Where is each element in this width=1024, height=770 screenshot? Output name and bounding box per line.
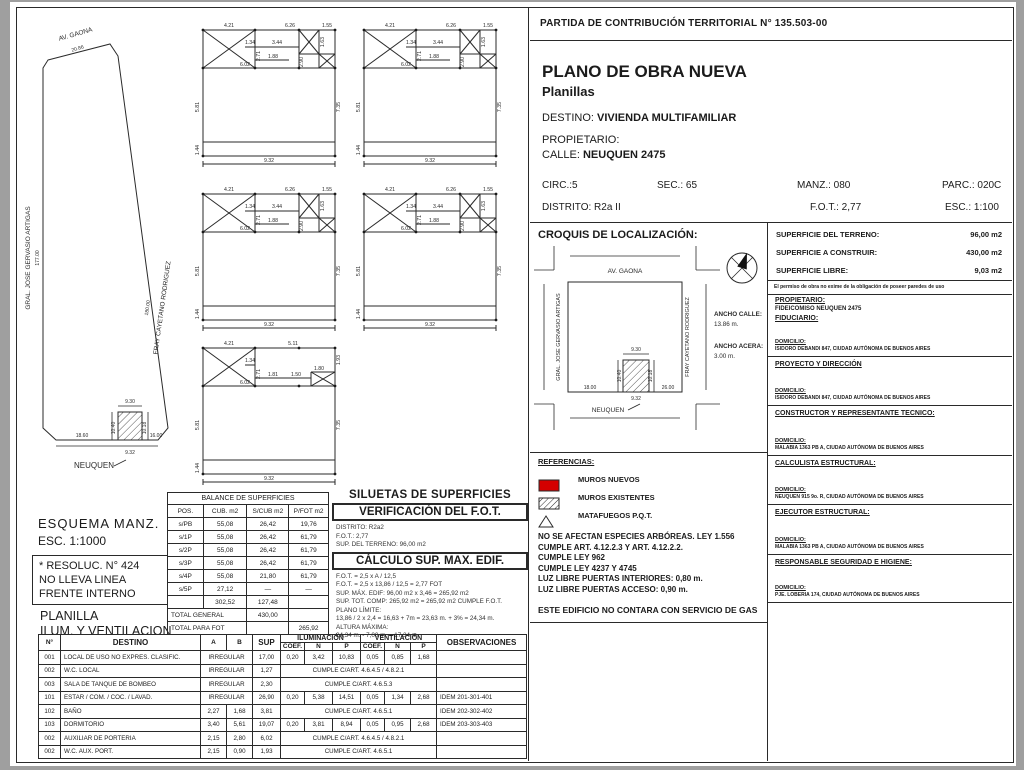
planilla-header: A bbox=[201, 635, 227, 651]
svg-text:6.02: 6.02 bbox=[401, 62, 411, 68]
balance-total-cell: 265,92 bbox=[289, 622, 329, 635]
cell-destino: LOCAL DE USO NO EXPRES. CLASIFIC. bbox=[61, 651, 201, 665]
balance-cell: 61,79 bbox=[289, 570, 329, 583]
balance-table: BALANCE DE SUPERFICIESPOS.CUB. m2S/CUB m… bbox=[167, 492, 329, 635]
cell-obs bbox=[437, 745, 527, 759]
planilla-ilum-vent-table: N°DESTINOABSUPILUMINACIÓNVENTILACIÓNOBSE… bbox=[38, 634, 527, 759]
domicilio-label: DOMICILIO: bbox=[775, 537, 806, 543]
svg-text:3.44: 3.44 bbox=[433, 204, 443, 210]
svg-text:6.26: 6.26 bbox=[285, 187, 295, 193]
balance-title: BALANCE DE SUPERFICIES bbox=[168, 493, 329, 505]
cell-ab: IRREGULAR bbox=[201, 678, 253, 692]
section-5: EJECUTOR ESTRUCTURAL:DOMICILIO:MALABIA 1… bbox=[768, 505, 1012, 555]
croquis-dim-left: 10.40 bbox=[617, 370, 623, 383]
svg-text:1.34: 1.34 bbox=[245, 40, 255, 46]
cell-obs bbox=[437, 664, 527, 678]
svg-text:7.35: 7.35 bbox=[336, 266, 342, 276]
balance-cell: s/5P bbox=[168, 583, 204, 596]
cell-ab: IRREGULAR bbox=[201, 651, 253, 665]
superficie-label: SUPERFICIE LIBRE: bbox=[776, 266, 848, 275]
floor-silhouette-5: 4.215.111.342.711.811.501.806.021.935.81… bbox=[193, 332, 345, 490]
balance-cell: s/2P bbox=[168, 544, 204, 557]
svg-text:6.02: 6.02 bbox=[240, 380, 250, 386]
balance-header: S/CUB m2 bbox=[247, 505, 289, 518]
cell-value: 3,81 bbox=[305, 718, 333, 732]
calculo-lines: F.O.T. = 2,5 x A / 12,5F.O.T. = 2,5 x 13… bbox=[336, 573, 528, 641]
calculo-line: ALTURA MÁXIMA: bbox=[336, 624, 528, 633]
svg-text:1.88: 1.88 bbox=[429, 218, 439, 224]
referencias-items: MUROS NUEVOSMUROS EXISTENTESMATAFUEGOS P… bbox=[538, 470, 760, 524]
balance-cell: 26,42 bbox=[247, 544, 289, 557]
svg-text:1.63: 1.63 bbox=[320, 201, 326, 211]
ancho-calle-label: ANCHO CALLE: bbox=[714, 311, 762, 318]
svg-text:3.44: 3.44 bbox=[433, 40, 443, 46]
svg-text:6.02: 6.02 bbox=[240, 62, 250, 68]
svg-text:7.35: 7.35 bbox=[336, 420, 342, 430]
balance-cell bbox=[168, 596, 204, 609]
legend-label: MUROS NUEVOS bbox=[578, 475, 640, 484]
cell-b: 2,80 bbox=[227, 732, 253, 746]
cell-sup: 1,93 bbox=[253, 745, 281, 759]
domicilio-value: NEUQUEN 915 9o. R, CIUDAD AUTÓNOMA DE BU… bbox=[775, 494, 924, 500]
planilla-header: N bbox=[305, 643, 333, 651]
cell-num: 003 bbox=[39, 678, 61, 692]
svg-text:3.44: 3.44 bbox=[272, 204, 282, 210]
section-1: PROPIETARIO:FIDEICOMISO NEUQUEN 2475FIDU… bbox=[768, 293, 1012, 357]
svg-text:7.35: 7.35 bbox=[336, 102, 342, 112]
cell-num: 002 bbox=[39, 745, 61, 759]
croquis-street-neuquen: NEUQUEN bbox=[592, 407, 625, 414]
cell-num: 002 bbox=[39, 664, 61, 678]
north-arrow-icon bbox=[727, 251, 757, 283]
cell-obs: IDEM 202-302-402 bbox=[437, 705, 527, 719]
svg-text:1.55: 1.55 bbox=[483, 187, 493, 193]
svg-text:9.32: 9.32 bbox=[264, 322, 274, 328]
manz-value: MANZ.: 080 bbox=[797, 180, 850, 191]
destino-label: DESTINO: bbox=[542, 112, 594, 124]
domicilio-value: PJE. LOBERIA 174, CIUDAD AUTÓNOMA DE BUE… bbox=[775, 592, 920, 598]
responsibles-sections: PROPIETARIO:FIDEICOMISO NEUQUEN 2475FIDU… bbox=[768, 293, 1012, 603]
svg-text:1.88: 1.88 bbox=[429, 54, 439, 60]
svg-text:6.26: 6.26 bbox=[446, 187, 456, 193]
partida-box: PARTIDA DE CONTRIBUCIÓN TERRITORIAL N° 1… bbox=[530, 7, 1012, 41]
superficies-summary: SUPERFICIE DEL TERRENO:96,00 m2SUPERFICI… bbox=[768, 222, 1012, 280]
superficie-value: 430,00 m2 bbox=[966, 248, 1002, 257]
balance-cell: 26,42 bbox=[247, 518, 289, 531]
svg-text:4.21: 4.21 bbox=[385, 23, 395, 29]
cell-sup: 3,81 bbox=[253, 705, 281, 719]
planilla-row: 102BAÑO2,271,683,81CUMPLE C/ART. 4.6.5.1… bbox=[39, 705, 527, 719]
svg-text:6.26: 6.26 bbox=[446, 23, 456, 29]
svg-text:2.90: 2.90 bbox=[460, 57, 466, 67]
propietario-line: PROPIETARIO: bbox=[542, 134, 619, 146]
cell-a: 2,27 bbox=[201, 705, 227, 719]
superficie-row: SUPERFICIE LIBRE:9,03 m2 bbox=[776, 266, 1002, 275]
svg-text:2.71: 2.71 bbox=[417, 51, 423, 61]
referencias-box: REFERENCIAS: MUROS NUEVOSMUROS EXISTENTE… bbox=[530, 452, 768, 623]
verificacion-lines: DISTRITO: R2a2F.O.T.: 2,77SUP. DEL TERRE… bbox=[336, 524, 528, 550]
cell-value: 0,05 bbox=[361, 718, 385, 732]
svg-text:1.55: 1.55 bbox=[322, 23, 332, 29]
svg-text:1.63: 1.63 bbox=[320, 37, 326, 47]
cell-value: 0,20 bbox=[281, 651, 305, 665]
balance-cell: s/4P bbox=[168, 570, 204, 583]
planilla-header: DESTINO bbox=[61, 635, 201, 651]
section-title: CALCULISTA ESTRUCTURAL: bbox=[775, 460, 876, 467]
svg-text:1.93: 1.93 bbox=[336, 355, 342, 365]
cell-destino: W.C. AUX. PORT. bbox=[61, 745, 201, 759]
partida-text: PARTIDA DE CONTRIBUCIÓN TERRITORIAL N° 1… bbox=[540, 18, 827, 29]
svg-text:7.35: 7.35 bbox=[497, 102, 503, 112]
balance-cell: 61,79 bbox=[289, 544, 329, 557]
cell-sup: 6,02 bbox=[253, 732, 281, 746]
cell-value: 8,94 bbox=[333, 718, 361, 732]
domicilio-label: DOMICILIO: bbox=[775, 339, 806, 345]
cell-value: 0,05 bbox=[361, 691, 385, 705]
croquis-dim-top: 9.30 bbox=[631, 347, 641, 353]
svg-text:1.80: 1.80 bbox=[314, 366, 324, 372]
referencias-title: REFERENCIAS: bbox=[538, 457, 760, 466]
superficie-value: 9,03 m2 bbox=[974, 266, 1002, 275]
balance-cell: 26,42 bbox=[247, 557, 289, 570]
svg-text:9.32: 9.32 bbox=[264, 158, 274, 164]
floor-silhouette-3: 4.216.261.551.343.442.711.886.021.632.90… bbox=[193, 178, 345, 336]
planilla-row: 001LOCAL DE USO NO EXPRES. CLASIFIC.IRRE… bbox=[39, 651, 527, 665]
cell-cumple: CUMPLE C/ART. 4.6.4.5 / 4.8.2.1 bbox=[281, 664, 437, 678]
sheet-subtitle: Planillas bbox=[542, 84, 595, 99]
svg-text:2.90: 2.90 bbox=[299, 221, 305, 231]
svg-text:1.44: 1.44 bbox=[356, 145, 362, 155]
domicilio-label: DOMICILIO: bbox=[775, 585, 806, 591]
cell-b: 5,61 bbox=[227, 718, 253, 732]
planilla-header: N bbox=[385, 643, 411, 651]
sheet-title: PLANO DE OBRA NUEVA bbox=[542, 62, 747, 82]
cell-destino: W.C. LOCAL bbox=[61, 664, 201, 678]
balance-superficies: BALANCE DE SUPERFICIESPOS.CUB. m2S/CUB m… bbox=[167, 492, 329, 635]
section-line: FIDEICOMISO NEUQUEN 2475 bbox=[775, 306, 861, 312]
balance-cell: — bbox=[247, 583, 289, 596]
balance-cell: 127,48 bbox=[247, 596, 289, 609]
planilla-row: 002W.C. AUX. PORT.2,150,901,93CUMPLE C/A… bbox=[39, 745, 527, 759]
svg-text:1.34: 1.34 bbox=[245, 204, 255, 210]
cell-value: 2,68 bbox=[411, 718, 437, 732]
svg-text:6.02: 6.02 bbox=[240, 226, 250, 232]
domicilio-label: DOMICILIO: bbox=[775, 438, 806, 444]
planilla-header: VENTILACIÓN bbox=[361, 635, 437, 643]
cell-destino: AUXILIAR DE PORTERIA bbox=[61, 732, 201, 746]
superficie-label: SUPERFICIE DEL TERRENO: bbox=[776, 230, 879, 239]
svg-text:2.71: 2.71 bbox=[256, 51, 262, 61]
svg-text:1.44: 1.44 bbox=[356, 309, 362, 319]
svg-text:9.32: 9.32 bbox=[425, 158, 435, 164]
esc-value: ESC.: 1:100 bbox=[945, 202, 999, 213]
svg-text:1.81: 1.81 bbox=[268, 372, 278, 378]
cell-cumple: CUMPLE C/ART. 4.6.4.5 / 4.8.2.1 bbox=[281, 732, 437, 746]
floor-silhouette-1: 4.216.261.551.343.442.711.886.021.632.90… bbox=[193, 14, 345, 172]
cell-num: 102 bbox=[39, 705, 61, 719]
planilla-header: P bbox=[411, 643, 437, 651]
section-line: FIDUCIARIO: bbox=[775, 315, 818, 322]
section-4: CALCULISTA ESTRUCTURAL:DOMICILIO:NEUQUEN… bbox=[768, 456, 1012, 505]
section-2: PROYECTO Y DIRECCIÓNDOMICILIO:ISIDORO DE… bbox=[768, 357, 1012, 406]
svg-text:6.02: 6.02 bbox=[401, 226, 411, 232]
svg-text:5.81: 5.81 bbox=[356, 266, 362, 276]
svg-text:1.55: 1.55 bbox=[322, 187, 332, 193]
croquis-street-gaona: AV. GAONA bbox=[608, 268, 643, 275]
calculo-line: PLANO LÍMITE: bbox=[336, 607, 528, 616]
balance-cell: 19,76 bbox=[289, 518, 329, 531]
compliance-note: CUMPLE LEY 962 bbox=[538, 553, 760, 564]
croquis-dim-street-left: 18.00 bbox=[584, 385, 597, 391]
domicilio-value: MALABIA 1363 PB A, CIUDAD AUTÓNOMA DE BU… bbox=[775, 445, 924, 451]
fot-block: SILUETAS DE SUPERFICIES VERIFICACIÓN DEL… bbox=[332, 489, 528, 643]
balance-cell: 55,08 bbox=[203, 518, 247, 531]
cell-value: 0,05 bbox=[361, 651, 385, 665]
calculo-line: F.O.T. = 2,5 x A / 12,5 bbox=[336, 573, 528, 582]
cell-value: 0,95 bbox=[385, 718, 411, 732]
legend-item: MUROS NUEVOS bbox=[538, 470, 760, 488]
balance-cell: 55,08 bbox=[203, 544, 247, 557]
compliance-note: CUMPLE ART. 4.12.2.3 Y ART. 4.12.2.2. bbox=[538, 543, 760, 554]
svg-text:5.81: 5.81 bbox=[356, 102, 362, 112]
svg-text:1.55: 1.55 bbox=[483, 23, 493, 29]
planilla-header: SUP bbox=[253, 635, 281, 651]
calculo-line: 13,86 / 2 x 2,4 = 16,63 + 7m = 23,63 m. … bbox=[336, 615, 528, 624]
svg-text:1.88: 1.88 bbox=[268, 218, 278, 224]
planilla-row: 003SALA DE TANQUE DE BOMBEOIRREGULAR2,30… bbox=[39, 678, 527, 692]
svg-text:1.34: 1.34 bbox=[406, 40, 416, 46]
svg-text:5.81: 5.81 bbox=[195, 102, 201, 112]
cell-value: 1,68 bbox=[411, 651, 437, 665]
planilla-header: COEF. bbox=[281, 643, 305, 651]
section-title: EJECUTOR ESTRUCTURAL: bbox=[775, 509, 870, 516]
cell-value: 10,83 bbox=[333, 651, 361, 665]
propietario-label: PROPIETARIO: bbox=[542, 134, 619, 146]
croquis-dim-street-right: 26.00 bbox=[662, 385, 675, 391]
svg-text:4.21: 4.21 bbox=[385, 187, 395, 193]
cell-value: 14,51 bbox=[333, 691, 361, 705]
balance-cell bbox=[289, 596, 329, 609]
balance-cell: s/1P bbox=[168, 531, 204, 544]
section-3: CONSTRUCTOR Y REPRESENTANTE TECNICO:DOMI… bbox=[768, 406, 1012, 456]
compliance-note: LUZ LIBRE PUERTAS INTERIORES: 0,80 m. bbox=[538, 574, 760, 585]
cell-value: 0,20 bbox=[281, 691, 305, 705]
cell-value: 2,68 bbox=[411, 691, 437, 705]
calculo-line: SUP. MÁX. EDIF: 96,00 m2 x 3,46 = 265,92… bbox=[336, 590, 528, 599]
balance-cell: 55,08 bbox=[203, 531, 247, 544]
svg-text:1.88: 1.88 bbox=[268, 54, 278, 60]
svg-text:1.44: 1.44 bbox=[195, 145, 201, 155]
croquis-drawing: AV. GAONA NEUQUEN GRAL. JOSE GERVASIO AR… bbox=[530, 240, 767, 450]
section-title: PROPIETARIO: bbox=[775, 297, 825, 304]
planilla-header: P bbox=[333, 643, 361, 651]
siluetas-title: SILUETAS DE SUPERFICIES bbox=[332, 489, 528, 501]
planilla-row: 002AUXILIAR DE PORTERIA2,152,806,02CUMPL… bbox=[39, 732, 527, 746]
cell-sup: 17,00 bbox=[253, 651, 281, 665]
domicilio-label: DOMICILIO: bbox=[775, 487, 806, 493]
planilla-header: COEF. bbox=[361, 643, 385, 651]
planilla-row: 002W.C. LOCALIRREGULAR1,27CUMPLE C/ART. … bbox=[39, 664, 527, 678]
croquis-street-artigas: GRAL. JOSE GERVASIO ARTIGAS bbox=[556, 293, 562, 381]
svg-text:3.44: 3.44 bbox=[272, 40, 282, 46]
cell-b: 1,68 bbox=[227, 705, 253, 719]
sec-value: SEC.: 65 bbox=[657, 180, 697, 191]
planilla-row: 103DORMITORIO3,405,6119,070,203,818,940,… bbox=[39, 718, 527, 732]
cell-value: 5,38 bbox=[305, 691, 333, 705]
domicilio-value: MALABIA 1363 PB A, CIUDAD AUTÓNOMA DE BU… bbox=[775, 544, 924, 550]
calculo-line: F.O.T. = 2,5 x 13,86 / 12,5 = 2,77 FOT bbox=[336, 581, 528, 590]
title-block: PLANO DE OBRA NUEVA Planillas DESTINO: V… bbox=[530, 40, 1012, 223]
croquis-dim-right: 10.18 bbox=[648, 370, 654, 383]
svg-text:1.50: 1.50 bbox=[291, 372, 301, 378]
cell-obs bbox=[437, 678, 527, 692]
referencias-notes: NO SE AFECTAN ESPECIES ARBÓREAS. LEY 1.5… bbox=[538, 532, 760, 595]
cell-cumple: CUMPLE C/ART. 4.6.5.1 bbox=[281, 705, 437, 719]
compliance-note: NO SE AFECTAN ESPECIES ARBÓREAS. LEY 1.5… bbox=[538, 532, 760, 543]
superficie-value: 96,00 m2 bbox=[970, 230, 1002, 239]
balance-cell: 61,79 bbox=[289, 557, 329, 570]
svg-text:2.90: 2.90 bbox=[299, 57, 305, 67]
cell-sup: 1,27 bbox=[253, 664, 281, 678]
section-6: RESPONSABLE SEGURIDAD E HIGIENE:DOMICILI… bbox=[768, 555, 1012, 603]
cell-ab: IRREGULAR bbox=[201, 691, 253, 705]
calle-value: NEUQUEN 2475 bbox=[583, 149, 666, 161]
cell-destino: ESTAR / COM. / COC. / LAVAD. bbox=[61, 691, 201, 705]
cell-cumple: CUMPLE C/ART. 4.6.5.1 bbox=[281, 745, 437, 759]
balance-total-cell bbox=[289, 609, 329, 622]
svg-text:1.34: 1.34 bbox=[406, 204, 416, 210]
svg-text:1.63: 1.63 bbox=[481, 37, 487, 47]
legend-label: MATAFUEGOS P.Q.T. bbox=[578, 511, 652, 520]
svg-text:4.21: 4.21 bbox=[224, 23, 234, 29]
domicilio-label: DOMICILIO: bbox=[775, 388, 806, 394]
croquis-parcel-hatched bbox=[623, 360, 649, 392]
svg-text:1.44: 1.44 bbox=[195, 309, 201, 319]
cell-ab: IRREGULAR bbox=[201, 664, 253, 678]
cell-value: 0,20 bbox=[281, 718, 305, 732]
balance-total-label: TOTAL PARA FOT bbox=[168, 622, 247, 635]
svg-text:2.71: 2.71 bbox=[417, 215, 423, 225]
cell-value: 0,85 bbox=[385, 651, 411, 665]
balance-cell: 27,12 bbox=[203, 583, 247, 596]
cell-sup: 19,07 bbox=[253, 718, 281, 732]
cell-a: 2,15 bbox=[201, 732, 227, 746]
balance-header: CUB. m2 bbox=[203, 505, 247, 518]
calle-label: CALLE: bbox=[542, 149, 580, 161]
svg-text:4.21: 4.21 bbox=[224, 187, 234, 193]
balance-cell: 55,08 bbox=[203, 570, 247, 583]
cell-sup: 2,30 bbox=[253, 678, 281, 692]
svg-text:9.32: 9.32 bbox=[425, 322, 435, 328]
superficie-label: SUPERFICIE A CONSTRUIR: bbox=[776, 248, 877, 257]
svg-text:2.90: 2.90 bbox=[460, 221, 466, 231]
cell-value: 3,42 bbox=[305, 651, 333, 665]
cell-value: 1,34 bbox=[385, 691, 411, 705]
circ-value: CIRC.:5 bbox=[542, 180, 578, 191]
domicilio-value: ISIDORO DEBANDI 847, CIUDAD AUTÓNOMA DE … bbox=[775, 346, 930, 352]
cell-num: 101 bbox=[39, 691, 61, 705]
superficie-row: SUPERFICIE DEL TERRENO:96,00 m2 bbox=[776, 230, 1002, 239]
cell-destino: SALA DE TANQUE DE BOMBEO bbox=[61, 678, 201, 692]
cell-obs: IDEM 203-303-403 bbox=[437, 718, 527, 732]
croquis-street-rodriguez: FRAY CAYETANO RODRIGUEZ bbox=[685, 297, 691, 377]
ancho-acera-value: 3.00 m. bbox=[714, 353, 735, 360]
svg-text:5.11: 5.11 bbox=[288, 341, 298, 347]
superficie-row: SUPERFICIE A CONSTRUIR:430,00 m2 bbox=[776, 248, 1002, 257]
calculo-header: CÁLCULO SUP. MAX. EDIF. bbox=[332, 552, 528, 570]
compliance-note: CUMPLE LEY 4237 Y 4745 bbox=[538, 564, 760, 575]
svg-text:5.81: 5.81 bbox=[195, 266, 201, 276]
balance-header: POS. bbox=[168, 505, 204, 518]
croquis-dim-bottom: 9.32 bbox=[631, 396, 641, 402]
domicilio-value: ISIDORO DEBANDI 847, CIUDAD AUTÓNOMA DE … bbox=[775, 395, 930, 401]
balance-cell: 55,08 bbox=[203, 557, 247, 570]
verificacion-line: DISTRITO: R2a2 bbox=[336, 524, 528, 533]
ancho-acera-label: ANCHO ACERA: bbox=[714, 343, 763, 350]
cell-obs: IDEM 201-301-401 bbox=[437, 691, 527, 705]
planilla-header: B bbox=[227, 635, 253, 651]
planilla-header: N° bbox=[39, 635, 61, 651]
planilla-table: N°DESTINOABSUPILUMINACIÓNVENTILACIÓNOBSE… bbox=[38, 634, 527, 759]
balance-cell: 21,80 bbox=[247, 570, 289, 583]
planilla-header: OBSERVACIONES bbox=[437, 635, 527, 651]
floor-silhouette-2: 4.216.261.551.343.442.711.886.021.632.90… bbox=[354, 14, 506, 172]
svg-text:2.71: 2.71 bbox=[256, 369, 262, 379]
balance-total-cell bbox=[247, 622, 289, 635]
parc-value: PARC.: 020C bbox=[942, 180, 1001, 191]
svg-text:5.81: 5.81 bbox=[195, 420, 201, 430]
cell-b: 0,90 bbox=[227, 745, 253, 759]
cell-destino: BAÑO bbox=[61, 705, 201, 719]
svg-text:1.44: 1.44 bbox=[195, 463, 201, 473]
balance-cell: 302,52 bbox=[203, 596, 247, 609]
svg-text:1.34: 1.34 bbox=[245, 358, 255, 364]
calle-line: CALLE: NEUQUEN 2475 bbox=[542, 149, 666, 161]
no-gas-note: ESTE EDIFICIO NO CONTARA CON SERVICIO DE… bbox=[538, 605, 760, 615]
compliance-note: LUZ LIBRE PUERTAS ACCESO: 0,90 m. bbox=[538, 585, 760, 596]
svg-text:1.63: 1.63 bbox=[481, 201, 487, 211]
calculo-line: SUP. TOT. COMP: 265,92 m2 = 265,92 m2 CU… bbox=[336, 598, 528, 607]
cell-a: 2,15 bbox=[201, 745, 227, 759]
svg-text:7.35: 7.35 bbox=[497, 266, 503, 276]
cell-num: 001 bbox=[39, 651, 61, 665]
fot-value: F.O.T.: 2,77 bbox=[810, 202, 861, 213]
cell-num: 103 bbox=[39, 718, 61, 732]
verificacion-header: VERIFICACIÓN DEL F.O.T. bbox=[332, 503, 528, 521]
balance-cell: 61,79 bbox=[289, 531, 329, 544]
disclaimer-text: El permiso de obra no exime de la obliga… bbox=[774, 284, 944, 290]
cell-sup: 26,90 bbox=[253, 691, 281, 705]
cell-destino: DORMITORIO bbox=[61, 718, 201, 732]
balance-cell: s/3P bbox=[168, 557, 204, 570]
section-title: RESPONSABLE SEGURIDAD E HIGIENE: bbox=[775, 559, 912, 566]
cell-cumple: CUMPLE C/ART. 4.6.5.3 bbox=[281, 678, 437, 692]
destino-line: DESTINO: VIVIENDA MULTIFAMILIAR bbox=[542, 112, 736, 124]
section-title: CONSTRUCTOR Y REPRESENTANTE TECNICO: bbox=[775, 410, 935, 417]
verificacion-line: SUP. DEL TERRENO: 96,00 m2 bbox=[336, 541, 528, 550]
balance-cell: s/PB bbox=[168, 518, 204, 531]
floor-silhouette-4: 4.216.261.551.343.442.711.886.021.632.90… bbox=[354, 178, 506, 336]
balance-total-label: TOTAL GENERAL bbox=[168, 609, 247, 622]
balance-total-cell: 430,00 bbox=[247, 609, 289, 622]
destino-value: VIVIENDA MULTIFAMILIAR bbox=[597, 112, 736, 124]
svg-text:9.32: 9.32 bbox=[264, 476, 274, 482]
svg-text:2.71: 2.71 bbox=[256, 215, 262, 225]
planilla-row: 101ESTAR / COM. / COC. / LAVAD.IRREGULAR… bbox=[39, 691, 527, 705]
legend-label: MUROS EXISTENTES bbox=[578, 493, 655, 502]
legend-item: MATAFUEGOS P.Q.T. bbox=[538, 506, 760, 524]
balance-cell: 26,42 bbox=[247, 531, 289, 544]
